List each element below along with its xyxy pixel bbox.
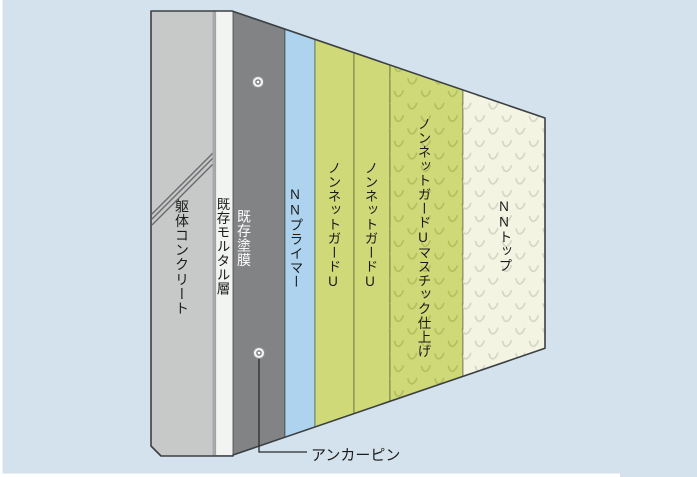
bottom-margin	[0, 474, 620, 477]
layer-label-guard2: ノンネットガードU	[363, 161, 377, 289]
layer-label-coating: 既存塗膜	[237, 209, 251, 267]
layer-label-concrete: 躯体コンクリート	[175, 199, 189, 316]
wall-system-diagram: 躯体コンクリート 既存モルタル層 既存塗膜 NNプライマー ノンネットガードU …	[0, 0, 697, 477]
layer-label-primer: NNプライマー	[288, 187, 302, 289]
layer-label-guard1: ノンネットガードU	[326, 161, 340, 289]
callout-label-anchor-pin: アンカーピン	[311, 444, 400, 465]
layer-label-top: NNトップ	[497, 199, 511, 273]
anchor-pin-bottom-icon	[253, 347, 264, 358]
layer-label-mortar: 既存モルタル層	[215, 197, 229, 296]
diagram-canvas	[0, 0, 697, 477]
layer-label-mastic: ノンネットガードUマスチック仕上げ	[416, 117, 430, 358]
left-margin	[0, 0, 3, 477]
anchor-pin-top-icon	[252, 76, 263, 87]
